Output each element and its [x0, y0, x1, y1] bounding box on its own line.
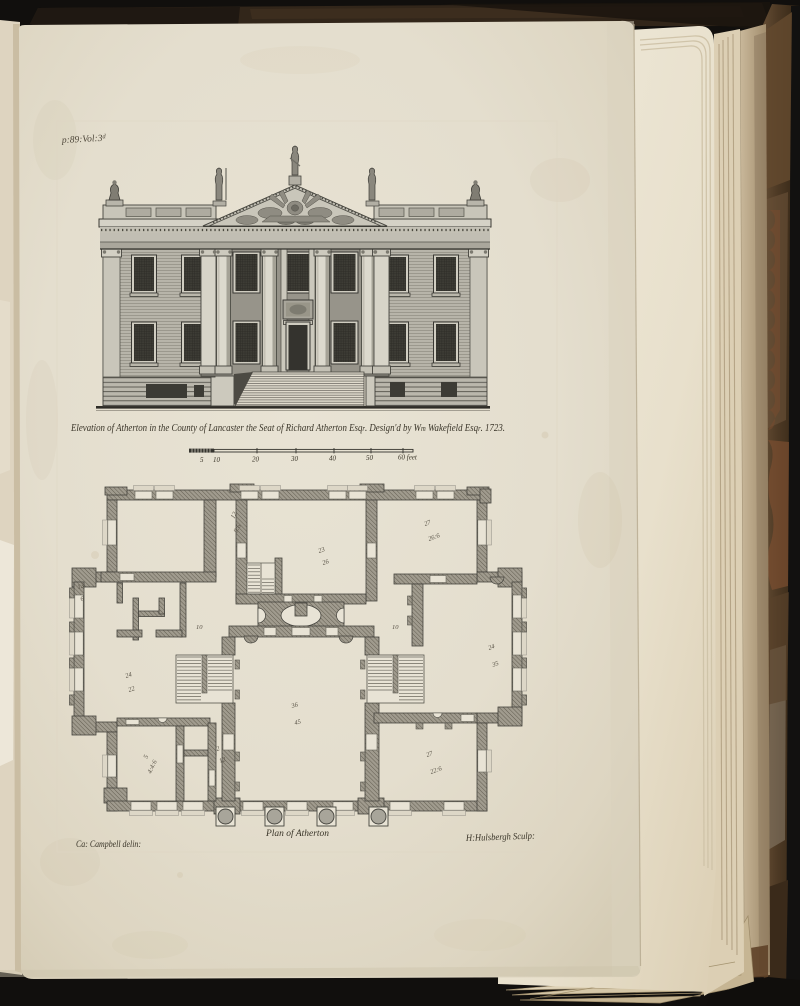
svg-text:50: 50 — [366, 454, 374, 462]
svg-text:40: 40 — [329, 455, 337, 463]
svg-text:10: 10 — [213, 456, 221, 464]
svg-text:20: 20 — [252, 456, 260, 464]
svg-text:10: 10 — [392, 624, 399, 631]
svg-text:60 feet: 60 feet — [398, 454, 418, 462]
svg-text:Ca: Campbell delin:: Ca: Campbell delin: — [76, 840, 141, 850]
svg-text:Elevation of Atherton in the C: Elevation of Atherton in the County of L… — [70, 422, 505, 434]
svg-text:10: 10 — [196, 624, 203, 631]
svg-text:Plan of Atherton: Plan of Atherton — [265, 828, 329, 839]
svg-text:30: 30 — [290, 455, 299, 463]
svg-text:5: 5 — [200, 456, 204, 464]
